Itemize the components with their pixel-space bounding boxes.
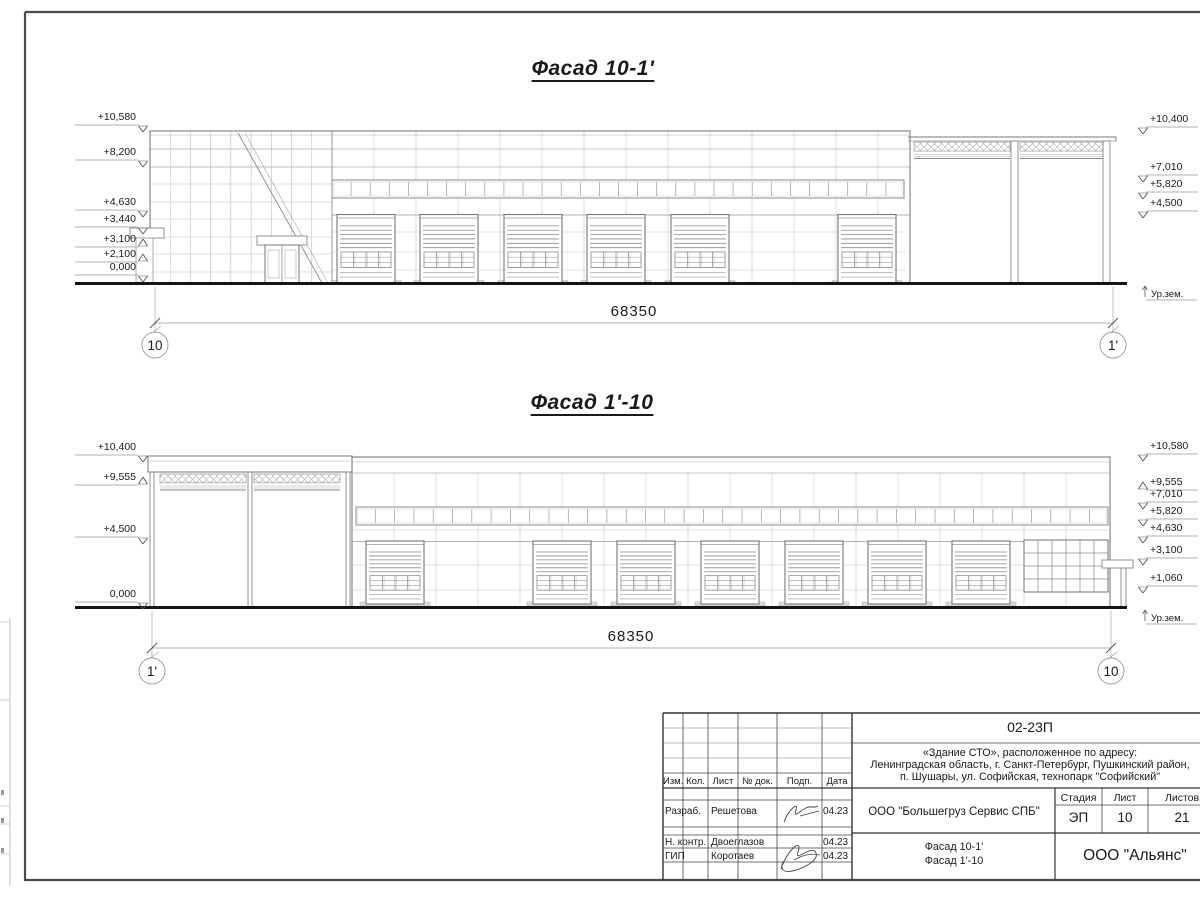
- client-name: ООО "Большегруз Сервис СПБ": [853, 806, 1055, 818]
- elevation-mark: +4,500: [75, 523, 136, 536]
- row-role-gip: ГИП: [665, 851, 685, 862]
- elevation-mark: +8,200: [75, 146, 136, 159]
- facade-bottom-title: Фасад 1'-10: [392, 391, 792, 415]
- elevation-mark: +5,820: [1150, 178, 1200, 191]
- row-name-gip: Коротаев: [711, 851, 754, 862]
- col-header-list: Лист: [708, 776, 738, 787]
- elevation-mark: +7,010: [1150, 488, 1200, 501]
- axis-label-top-right: 1': [1100, 338, 1126, 353]
- company-name: ООО "Альянс": [1055, 847, 1200, 865]
- sheet-header: Лист: [1102, 792, 1148, 804]
- project-description-line1: «Здание СТО», расположенное по адресу:: [853, 747, 1200, 759]
- elevation-mark: +3,100: [75, 233, 136, 246]
- drawing-sheet: { "facade_top": { "title": "Фасад 10-1'"…: [0, 0, 1200, 900]
- row-name-ncontrol: Двоеглазов: [711, 837, 764, 848]
- elevation-mark: +1,060: [1150, 572, 1200, 585]
- ground-level-label-top: Ур.зем.: [1151, 289, 1183, 300]
- facade-top-title: Фасад 10-1': [393, 57, 793, 81]
- col-header-kol: Кол.: [683, 776, 708, 787]
- row-date-developer: 04.23: [823, 806, 848, 817]
- sheets-total: 21: [1148, 810, 1200, 825]
- elevation-mark: +5,820: [1150, 505, 1200, 518]
- dimension-text-top: 68350: [584, 303, 684, 320]
- col-header-izm: Изм.: [663, 776, 683, 787]
- elevation-mark: +9,555: [75, 471, 136, 484]
- sheet-number: 10: [1102, 810, 1148, 825]
- elevation-mark: 0,000: [75, 261, 136, 274]
- elevation-mark: +4,500: [1150, 197, 1200, 210]
- elevation-mark: +10,400: [1150, 113, 1200, 126]
- col-header-ndok: № док.: [738, 776, 777, 787]
- row-role-ncontrol: Н. контр.: [665, 837, 706, 848]
- axis-label-bottom-left: 1': [139, 664, 165, 679]
- elevation-mark: +10,580: [75, 111, 136, 124]
- stage-header: Стадия: [1055, 792, 1102, 804]
- drawing-title-line1: Фасад 10-1': [853, 841, 1055, 853]
- doc-number: 02-23П: [853, 719, 1200, 735]
- project-description-line3: п. Шушары, ул. Софийская, технопарк "Соф…: [853, 771, 1200, 783]
- elevation-mark: +10,580: [1150, 440, 1200, 453]
- elevation-mark: +3,100: [1150, 544, 1200, 557]
- project-description-line2: Ленинградская область, г. Санкт-Петербур…: [853, 759, 1200, 771]
- dimension-text-bottom: 68350: [581, 628, 681, 645]
- row-name-developer: Решетова: [711, 806, 757, 817]
- elevation-mark: +7,010: [1150, 161, 1200, 174]
- ground-level-label-bottom: Ур.зем.: [1151, 613, 1183, 624]
- sheets-header: Листов: [1148, 792, 1200, 804]
- elevation-mark: +4,630: [1150, 522, 1200, 535]
- axis-label-bottom-right: 10: [1098, 664, 1124, 679]
- row-role-developer: Разраб.: [665, 806, 701, 817]
- col-header-data: Дата: [822, 776, 852, 787]
- elevation-mark: +3,440: [75, 213, 136, 226]
- row-date-gip: 04.23: [823, 851, 848, 862]
- stage-value: ЭП: [1055, 810, 1102, 825]
- row-date-ncontrol: 04.23: [823, 837, 848, 848]
- elevation-mark: +10,400: [75, 441, 136, 454]
- col-header-podp: Подп.: [777, 776, 822, 787]
- elevation-mark: +2,100: [75, 248, 136, 261]
- elevation-mark: +4,630: [75, 196, 136, 209]
- elevation-mark: 0,000: [75, 588, 136, 601]
- axis-label-top-left: 10: [142, 338, 168, 353]
- drawing-title-line2: Фасад 1'-10: [853, 855, 1055, 867]
